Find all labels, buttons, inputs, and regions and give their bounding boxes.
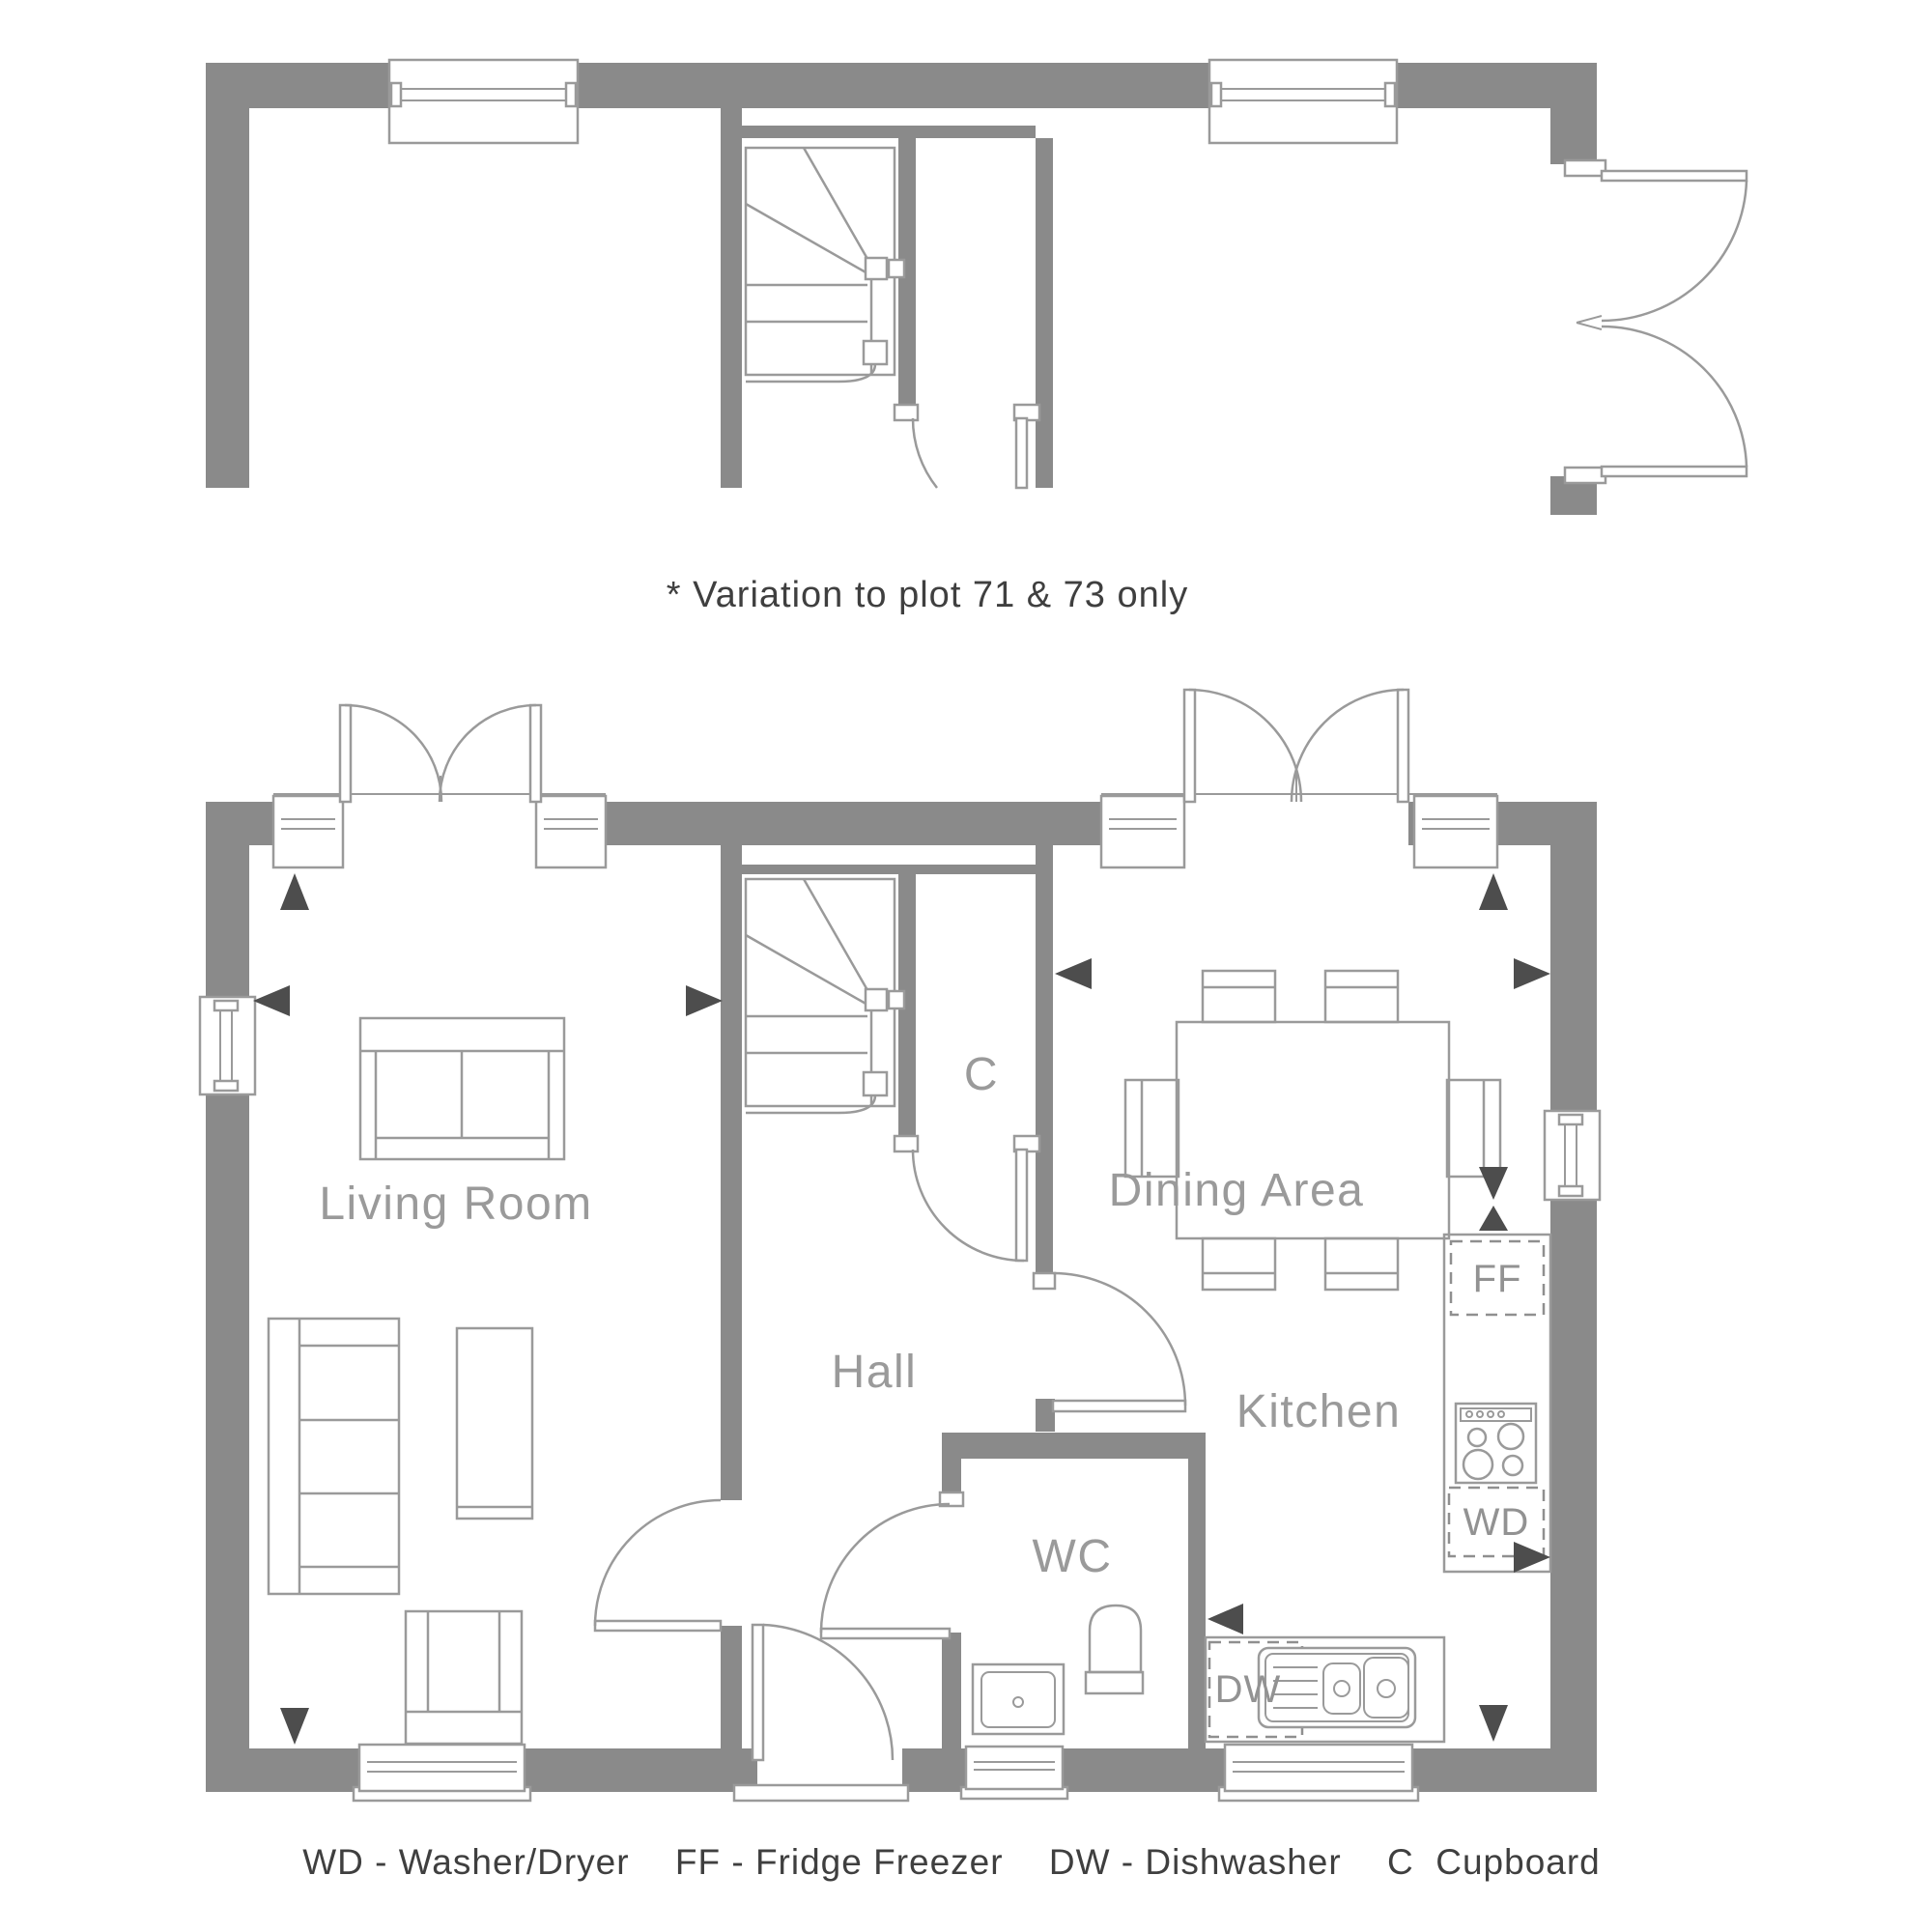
wc-bottom-window <box>961 1747 1067 1799</box>
armchair <box>406 1611 522 1744</box>
door-arc <box>1602 327 1747 467</box>
main-stairs <box>746 879 904 1113</box>
kitchen-door <box>1034 1273 1185 1411</box>
wall-stair-strip <box>742 865 1037 874</box>
variation-plan: * Variation to plot 71 & 73 only <box>206 60 1747 615</box>
door-arc <box>1602 181 1747 321</box>
door-leaf <box>1184 690 1195 802</box>
door-leaf <box>821 1629 950 1638</box>
wall-right <box>1550 845 1597 1748</box>
label-cupboard: C <box>964 1049 999 1100</box>
wall-stair-right <box>898 874 916 1150</box>
arrow-up-icon <box>1479 873 1508 910</box>
chair <box>1203 971 1275 1022</box>
door-frame-tab <box>1565 160 1605 176</box>
wall-wc-right <box>1188 1459 1206 1748</box>
door-arc <box>763 1625 893 1760</box>
label-wc: WC <box>1033 1531 1113 1582</box>
chair <box>1447 1080 1500 1177</box>
variation-cupboard-door <box>895 405 1039 488</box>
newel-post <box>864 1072 887 1095</box>
arrow-left-icon <box>1055 958 1092 989</box>
newel-stub <box>889 991 904 1009</box>
wall-corner-right <box>1550 108 1597 164</box>
label-dishwasher: DW <box>1215 1668 1282 1711</box>
door-arc <box>595 1500 721 1626</box>
wc-door <box>821 1492 963 1638</box>
legend-washer-dryer: WD - Washer/Dryer <box>302 1842 629 1882</box>
chair <box>1203 1238 1275 1290</box>
arrow-left-icon <box>1207 1604 1243 1634</box>
ground-floor-plan: Living Room Hall C Dining Area Kitchen W… <box>200 690 1600 1801</box>
legend-cupboard: C Cupboard <box>1387 1842 1601 1882</box>
variation-stairs <box>746 148 904 382</box>
door-arc <box>1292 690 1404 802</box>
wall-stair-strip <box>742 126 1036 138</box>
kitchen-sink <box>1259 1648 1415 1727</box>
kitchen-units <box>1206 1235 1550 1742</box>
door-leaf <box>530 705 541 802</box>
door-leaf <box>1053 1401 1185 1411</box>
arrow-left-icon <box>253 985 290 1016</box>
door-leaf <box>1602 171 1747 181</box>
front-door <box>734 1625 908 1801</box>
sofa-left <box>269 1319 399 1594</box>
door-arc <box>1189 690 1301 802</box>
wall-left <box>206 63 249 488</box>
door-arc <box>1053 1273 1185 1406</box>
chair <box>1325 1238 1398 1290</box>
basin <box>973 1664 1064 1734</box>
legend-fridge-freezer: FF - Fridge Freezer <box>675 1842 1004 1882</box>
variation-note: * Variation to plot 71 & 73 only <box>667 575 1188 615</box>
door-leaf <box>1602 467 1747 476</box>
door-frame-tab <box>1565 468 1605 483</box>
door-leaf <box>1016 1150 1027 1261</box>
wall-wc-left-lower <box>942 1633 961 1748</box>
door-leaf <box>595 1621 721 1631</box>
dining-french-doors <box>1101 690 1497 867</box>
wc-fixtures <box>973 1605 1143 1734</box>
cupboard-door <box>895 1136 1039 1261</box>
door-arc <box>821 1504 950 1633</box>
door-leaf <box>753 1625 763 1760</box>
variation-window-2 <box>1209 60 1397 143</box>
window-sidelight <box>273 796 343 867</box>
arrow-down-icon <box>1479 1705 1508 1742</box>
arrow-right-icon <box>1514 1542 1550 1573</box>
door-arc <box>345 705 441 802</box>
main-walls <box>206 802 1597 1792</box>
variation-french-doors <box>1565 160 1747 483</box>
wall-top-seg2 <box>538 802 1184 845</box>
arrow-up-icon <box>280 873 309 910</box>
stair-rail <box>746 364 875 382</box>
variation-window-1 <box>389 60 578 143</box>
label-fridge-freezer: FF <box>1473 1258 1522 1300</box>
sofa-top <box>360 1018 564 1159</box>
door-stop <box>895 1136 918 1151</box>
living-bottom-window <box>354 1745 530 1801</box>
arrow-right-icon <box>686 985 723 1016</box>
kitchen-bottom-window <box>1219 1745 1418 1801</box>
living-french-doors <box>273 705 606 867</box>
newel-post <box>866 989 887 1010</box>
newel-post <box>864 341 887 364</box>
label-washer-dryer: WD <box>1463 1501 1530 1544</box>
chair <box>1325 971 1398 1022</box>
stair-rail <box>746 1095 875 1113</box>
window-sidelight <box>536 796 606 867</box>
toilet <box>1086 1605 1143 1693</box>
coffee-table <box>457 1328 532 1519</box>
newel-stub <box>889 260 904 277</box>
legend: WD - Washer/Dryer FF - Fridge Freezer DW… <box>302 1842 1601 1882</box>
legend-dishwasher: DW - Dishwasher <box>1049 1842 1342 1882</box>
wall-cupboard-right <box>1036 138 1053 488</box>
kitchen-right-window <box>1545 1111 1600 1200</box>
living-left-window <box>200 997 255 1094</box>
oven-hob <box>1456 1404 1536 1483</box>
door-threshold <box>734 1785 908 1801</box>
door-leaf <box>1398 690 1408 802</box>
wall-cupboard-right <box>1036 845 1053 1275</box>
wall-left <box>206 802 249 1748</box>
door-leaf <box>1016 418 1027 488</box>
wall-hall-left-lower <box>721 1626 742 1748</box>
window-sidelight <box>1414 796 1497 867</box>
arrow-down-icon <box>280 1708 309 1745</box>
door-arc <box>913 418 937 488</box>
floorplan-canvas: * Variation to plot 71 & 73 only <box>0 0 1932 1932</box>
living-room-door <box>595 1500 721 1631</box>
label-living-room: Living Room <box>319 1179 592 1230</box>
wall-wc-top <box>942 1433 1206 1459</box>
arrow-down-icon <box>1479 1167 1508 1200</box>
arrow-up-icon <box>1479 1206 1508 1231</box>
wall-stair-left <box>721 108 742 488</box>
newel-post <box>866 258 887 279</box>
chair <box>1125 1080 1179 1177</box>
label-kitchen: Kitchen <box>1236 1386 1402 1437</box>
window-sidelight <box>1101 796 1184 867</box>
door-arc <box>913 1150 1024 1261</box>
label-hall: Hall <box>832 1347 918 1398</box>
door-stop <box>895 405 918 420</box>
label-dining-area: Dining Area <box>1109 1165 1365 1216</box>
wall-hall-left-upper <box>721 845 742 1500</box>
door-leaf <box>340 705 351 802</box>
door-stop <box>1034 1273 1055 1289</box>
arrow-right-icon <box>1514 958 1550 989</box>
door-arc <box>440 705 536 802</box>
